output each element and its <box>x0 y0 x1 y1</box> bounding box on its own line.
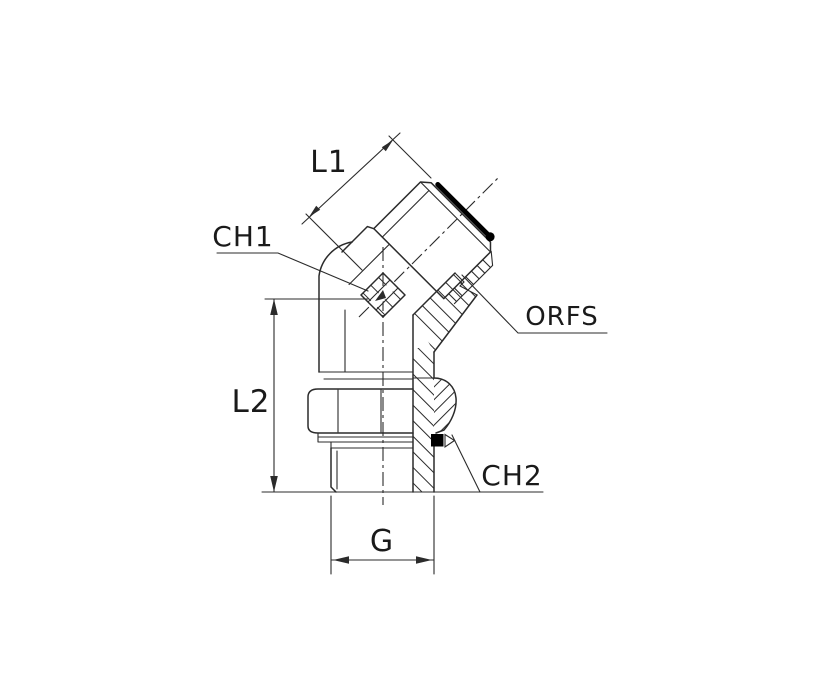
l2-arrow-bottom <box>270 476 278 492</box>
hex-locknut <box>308 389 413 448</box>
g-arrow-right <box>416 556 432 564</box>
dimension-label-l1: L1 <box>310 145 348 180</box>
o-ring-face-seal <box>438 184 488 234</box>
dimension-label-ch1: CH1 <box>212 220 273 253</box>
l1-arrow-lower <box>309 206 320 217</box>
washer-lines <box>318 433 413 448</box>
dimension-label-l2: L2 <box>232 384 271 420</box>
l2-arrow-top <box>270 299 278 315</box>
port-shoulder-edge <box>342 224 374 256</box>
dimension-label-g: G <box>370 524 394 559</box>
stud-wall-section-hatch <box>413 348 434 492</box>
technical-drawing-canvas: L1 CH1 L2 ORFS CH2 G <box>0 0 828 691</box>
dimension-g <box>262 492 543 574</box>
g-arrow-left <box>333 556 349 564</box>
orfs-nut-chamfer-line <box>420 182 490 252</box>
leader-ch2 <box>452 435 480 492</box>
stud-left-edge <box>331 448 336 492</box>
l1-arrow-upper <box>382 140 393 151</box>
ch1-hex-detail <box>361 273 405 317</box>
locknut-section-hatch <box>434 378 456 433</box>
ch2-leader-line <box>452 435 480 492</box>
dimension-l2 <box>265 299 368 492</box>
port-label-orfs: ORFS <box>525 302 599 332</box>
hex-outline <box>308 389 413 433</box>
dimension-label-ch2: CH2 <box>481 459 542 492</box>
l1-extension-upper <box>389 136 431 178</box>
elbow-wall-section-hatch <box>413 273 477 352</box>
orfs-45-elbow-fitting-drawing: L1 CH1 L2 ORFS CH2 G <box>0 0 828 691</box>
body-left-outline <box>319 242 352 372</box>
ch1-leader-line <box>217 253 368 291</box>
l1-extension-lower <box>306 214 362 270</box>
leader-ch1 <box>217 253 368 291</box>
port-o-ring <box>431 434 444 447</box>
